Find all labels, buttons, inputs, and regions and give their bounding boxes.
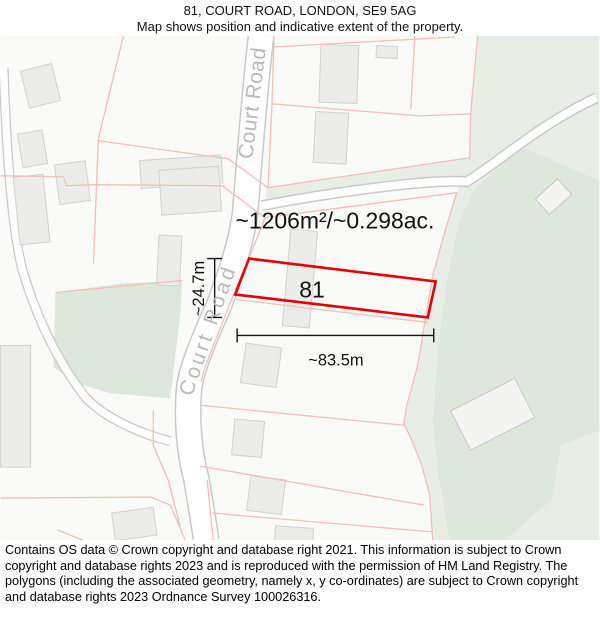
page-subtitle: Map shows position and indicative extent… — [0, 19, 600, 35]
page-title: 81, COURT ROAD, LONDON, SE9 5AG — [0, 3, 600, 19]
building — [156, 235, 182, 286]
building — [275, 526, 314, 540]
title-block: 81, COURT ROAD, LONDON, SE9 5AG Map show… — [0, 0, 600, 36]
copyright-notice: Contains OS data © Crown copyright and d… — [0, 540, 600, 605]
map-canvas: ~1206m²/~0.298ac. 81 ~83.5m ~24.7m Court… — [0, 36, 600, 540]
area-label: ~1206m²/~0.298ac. — [235, 208, 434, 234]
building — [247, 476, 286, 515]
building — [241, 343, 282, 388]
building — [17, 130, 47, 168]
building — [13, 174, 50, 245]
building — [319, 44, 359, 103]
width-label: ~83.5m — [308, 351, 363, 369]
building — [313, 112, 349, 165]
building — [376, 45, 398, 58]
property-map-page: 81, COURT ROAD, LONDON, SE9 5AG Map show… — [0, 0, 600, 625]
building — [1, 345, 31, 467]
map-svg: ~1206m²/~0.298ac. 81 ~83.5m ~24.7m Court… — [0, 36, 600, 540]
plot-number-label: 81 — [299, 276, 325, 302]
building — [112, 507, 157, 540]
building — [54, 161, 90, 205]
building — [159, 166, 222, 215]
building — [232, 419, 265, 457]
